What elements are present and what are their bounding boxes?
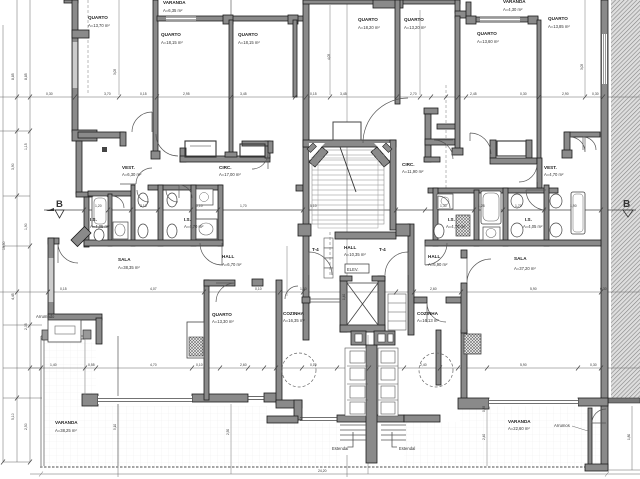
- svg-text:B: B: [56, 199, 63, 210]
- svg-text:0,30: 0,30: [592, 92, 599, 96]
- svg-text:VARANDA: VARANDA: [503, 0, 526, 4]
- svg-text:1,40: 1,40: [50, 363, 57, 367]
- svg-text:1,28: 1,28: [478, 204, 485, 208]
- svg-text:A=13,70 m²: A=13,70 m²: [88, 23, 110, 28]
- svg-text:1,70: 1,70: [515, 204, 522, 208]
- svg-text:3,45: 3,45: [240, 92, 247, 96]
- svg-text:SALA: SALA: [514, 256, 527, 261]
- svg-text:3,05: 3,05: [580, 64, 584, 70]
- svg-text:0,15: 0,15: [140, 92, 147, 96]
- svg-text:3,10: 3,10: [140, 204, 147, 208]
- svg-text:19,50: 19,50: [2, 241, 6, 250]
- svg-text:4,45: 4,45: [11, 293, 15, 300]
- svg-text:2,60: 2,60: [430, 287, 437, 291]
- svg-text:5,90: 5,90: [520, 363, 527, 367]
- svg-text:HALL: HALL: [222, 254, 234, 259]
- svg-text:A=16,35 m²: A=16,35 m²: [283, 318, 305, 323]
- svg-text:5,90: 5,90: [530, 287, 537, 291]
- svg-text:1,30: 1,30: [440, 204, 447, 208]
- svg-text:0,30: 0,30: [600, 287, 607, 291]
- svg-text:4,07: 4,07: [150, 287, 157, 291]
- svg-text:0,10: 0,10: [255, 287, 262, 291]
- svg-text:3,70: 3,70: [104, 92, 111, 96]
- svg-text:8,85: 8,85: [24, 73, 28, 80]
- svg-text:A=4,30 m²: A=4,30 m²: [503, 7, 523, 12]
- svg-text:B: B: [623, 199, 630, 210]
- svg-text:4,05: 4,05: [327, 54, 331, 60]
- svg-text:QUARTO: QUARTO: [477, 31, 497, 36]
- svg-text:HALL: HALL: [344, 245, 356, 250]
- svg-text:I.S.: I.S.: [525, 217, 532, 222]
- svg-text:2,40: 2,40: [482, 434, 486, 440]
- svg-text:3,45: 3,45: [340, 92, 347, 96]
- svg-text:VEST.: VEST.: [544, 165, 557, 170]
- svg-text:0,15: 0,15: [60, 287, 67, 291]
- svg-text:I.S.: I.S.: [90, 217, 97, 222]
- svg-text:2,50: 2,50: [226, 429, 230, 435]
- svg-text:ELEV.: ELEV.: [347, 267, 359, 272]
- svg-text:3,05: 3,05: [113, 69, 117, 75]
- svg-text:A=6,90 m²: A=6,90 m²: [428, 262, 448, 267]
- svg-text:Estendal: Estendal: [399, 446, 415, 451]
- svg-text:8,85: 8,85: [11, 73, 15, 80]
- svg-text:A=10,35 m²: A=10,35 m²: [344, 252, 366, 257]
- svg-text:T-4: T-4: [379, 247, 386, 252]
- svg-text:A=6,30 m²: A=6,30 m²: [122, 172, 142, 177]
- svg-text:A=6,35 m²: A=6,35 m²: [163, 8, 183, 13]
- svg-text:A=13,60 m²: A=13,60 m²: [477, 39, 499, 44]
- svg-text:Arrumado: Arrumado: [36, 314, 55, 319]
- svg-text:HALL: HALL: [428, 254, 440, 259]
- svg-text:A=4,05 m²: A=4,05 m²: [523, 224, 543, 229]
- svg-text:1,90: 1,90: [24, 223, 28, 230]
- svg-text:4,70: 4,70: [150, 363, 157, 367]
- svg-text:A=38,25 m²: A=38,25 m²: [55, 428, 77, 433]
- svg-text:2,90: 2,90: [562, 92, 569, 96]
- svg-text:0,10: 0,10: [310, 363, 317, 367]
- svg-text:A=6,70 m²: A=6,70 m²: [222, 262, 242, 267]
- svg-text:A=18,15 m²: A=18,15 m²: [238, 40, 260, 45]
- svg-text:5,10: 5,10: [113, 424, 117, 430]
- svg-text:CIRC.: CIRC.: [402, 162, 415, 167]
- svg-text:QUARTO: QUARTO: [238, 32, 258, 37]
- svg-text:VARANDA: VARANDA: [163, 0, 186, 5]
- svg-text:A=13,20 m²: A=13,20 m²: [404, 25, 426, 30]
- svg-text:1,80: 1,80: [627, 434, 631, 440]
- svg-text:5,10: 5,10: [310, 204, 317, 208]
- svg-text:A=13,30 m²: A=13,30 m²: [212, 319, 234, 324]
- svg-text:QUARTO: QUARTO: [548, 16, 568, 21]
- svg-text:A=18,15 m²: A=18,15 m²: [161, 40, 183, 45]
- svg-text:A=18,20 m²: A=18,20 m²: [358, 25, 380, 30]
- svg-text:0,35: 0,35: [482, 406, 486, 412]
- svg-text:QUARTO: QUARTO: [161, 32, 181, 37]
- svg-text:T-4: T-4: [312, 247, 319, 252]
- svg-text:0,30: 0,30: [46, 92, 53, 96]
- svg-text:QUARTO: QUARTO: [212, 312, 232, 317]
- svg-text:2,70: 2,70: [410, 92, 417, 96]
- svg-text:A=22,60 m²: A=22,60 m²: [508, 426, 530, 431]
- svg-text:1,20: 1,20: [95, 204, 102, 208]
- svg-text:0,10: 0,10: [196, 204, 203, 208]
- svg-text:A=16,13 m²: A=16,13 m²: [417, 318, 439, 323]
- svg-text:2,45: 2,45: [470, 92, 477, 96]
- svg-text:0,30: 0,30: [590, 363, 597, 367]
- svg-text:A=17,00 m²: A=17,00 m²: [219, 172, 241, 177]
- svg-text:1,70: 1,70: [240, 204, 247, 208]
- svg-text:COZINHA: COZINHA: [417, 311, 439, 316]
- svg-text:QUARTO: QUARTO: [88, 15, 108, 20]
- svg-text:3,90: 3,90: [11, 163, 15, 170]
- svg-text:VEST.: VEST.: [122, 165, 135, 170]
- svg-text:Estendal: Estendal: [332, 446, 348, 451]
- svg-text:VARANDA: VARANDA: [508, 419, 531, 424]
- svg-text:A=4,70 m²: A=4,70 m²: [184, 224, 204, 229]
- svg-text:0,15: 0,15: [310, 92, 317, 96]
- svg-text:A=4,70 m²: A=4,70 m²: [446, 224, 466, 229]
- svg-text:I.S.: I.S.: [448, 217, 455, 222]
- svg-text:1,60: 1,60: [300, 287, 307, 291]
- svg-text:VARANDA: VARANDA: [55, 420, 78, 425]
- svg-text:A=4,05 m²: A=4,05 m²: [90, 224, 110, 229]
- svg-text:2,60: 2,60: [240, 363, 247, 367]
- svg-text:COZINHA: COZINHA: [283, 311, 305, 316]
- svg-text:A=13,85 m²: A=13,85 m²: [548, 24, 570, 29]
- svg-text:1,15: 1,15: [24, 143, 28, 150]
- svg-text:A=37,20 m²: A=37,20 m²: [514, 266, 536, 271]
- svg-text:SALA: SALA: [118, 257, 131, 262]
- svg-text:1,40: 1,40: [342, 294, 346, 300]
- svg-text:A=11,90 m²: A=11,90 m²: [402, 169, 424, 174]
- svg-text:24,20: 24,20: [318, 469, 327, 473]
- svg-text:2,05: 2,05: [24, 323, 28, 330]
- svg-text:Arrumos: Arrumos: [554, 423, 570, 428]
- svg-text:2,50: 2,50: [24, 423, 28, 430]
- svg-text:2,40: 2,40: [420, 363, 427, 367]
- svg-text:I.S.: I.S.: [184, 217, 191, 222]
- svg-text:0,55: 0,55: [88, 363, 95, 367]
- svg-text:1,90: 1,90: [570, 204, 577, 208]
- svg-text:2,95: 2,95: [183, 92, 190, 96]
- svg-text:0,10: 0,10: [196, 363, 203, 367]
- svg-text:A=4,70 m²: A=4,70 m²: [544, 172, 564, 177]
- svg-text:QUARTO: QUARTO: [358, 17, 378, 22]
- svg-text:5,10: 5,10: [11, 413, 15, 420]
- svg-text:0,30: 0,30: [520, 92, 527, 96]
- svg-text:QUARTO: QUARTO: [404, 17, 424, 22]
- svg-text:A=38,35 m²: A=38,35 m²: [118, 265, 140, 270]
- svg-text:CIRC.: CIRC.: [219, 165, 232, 170]
